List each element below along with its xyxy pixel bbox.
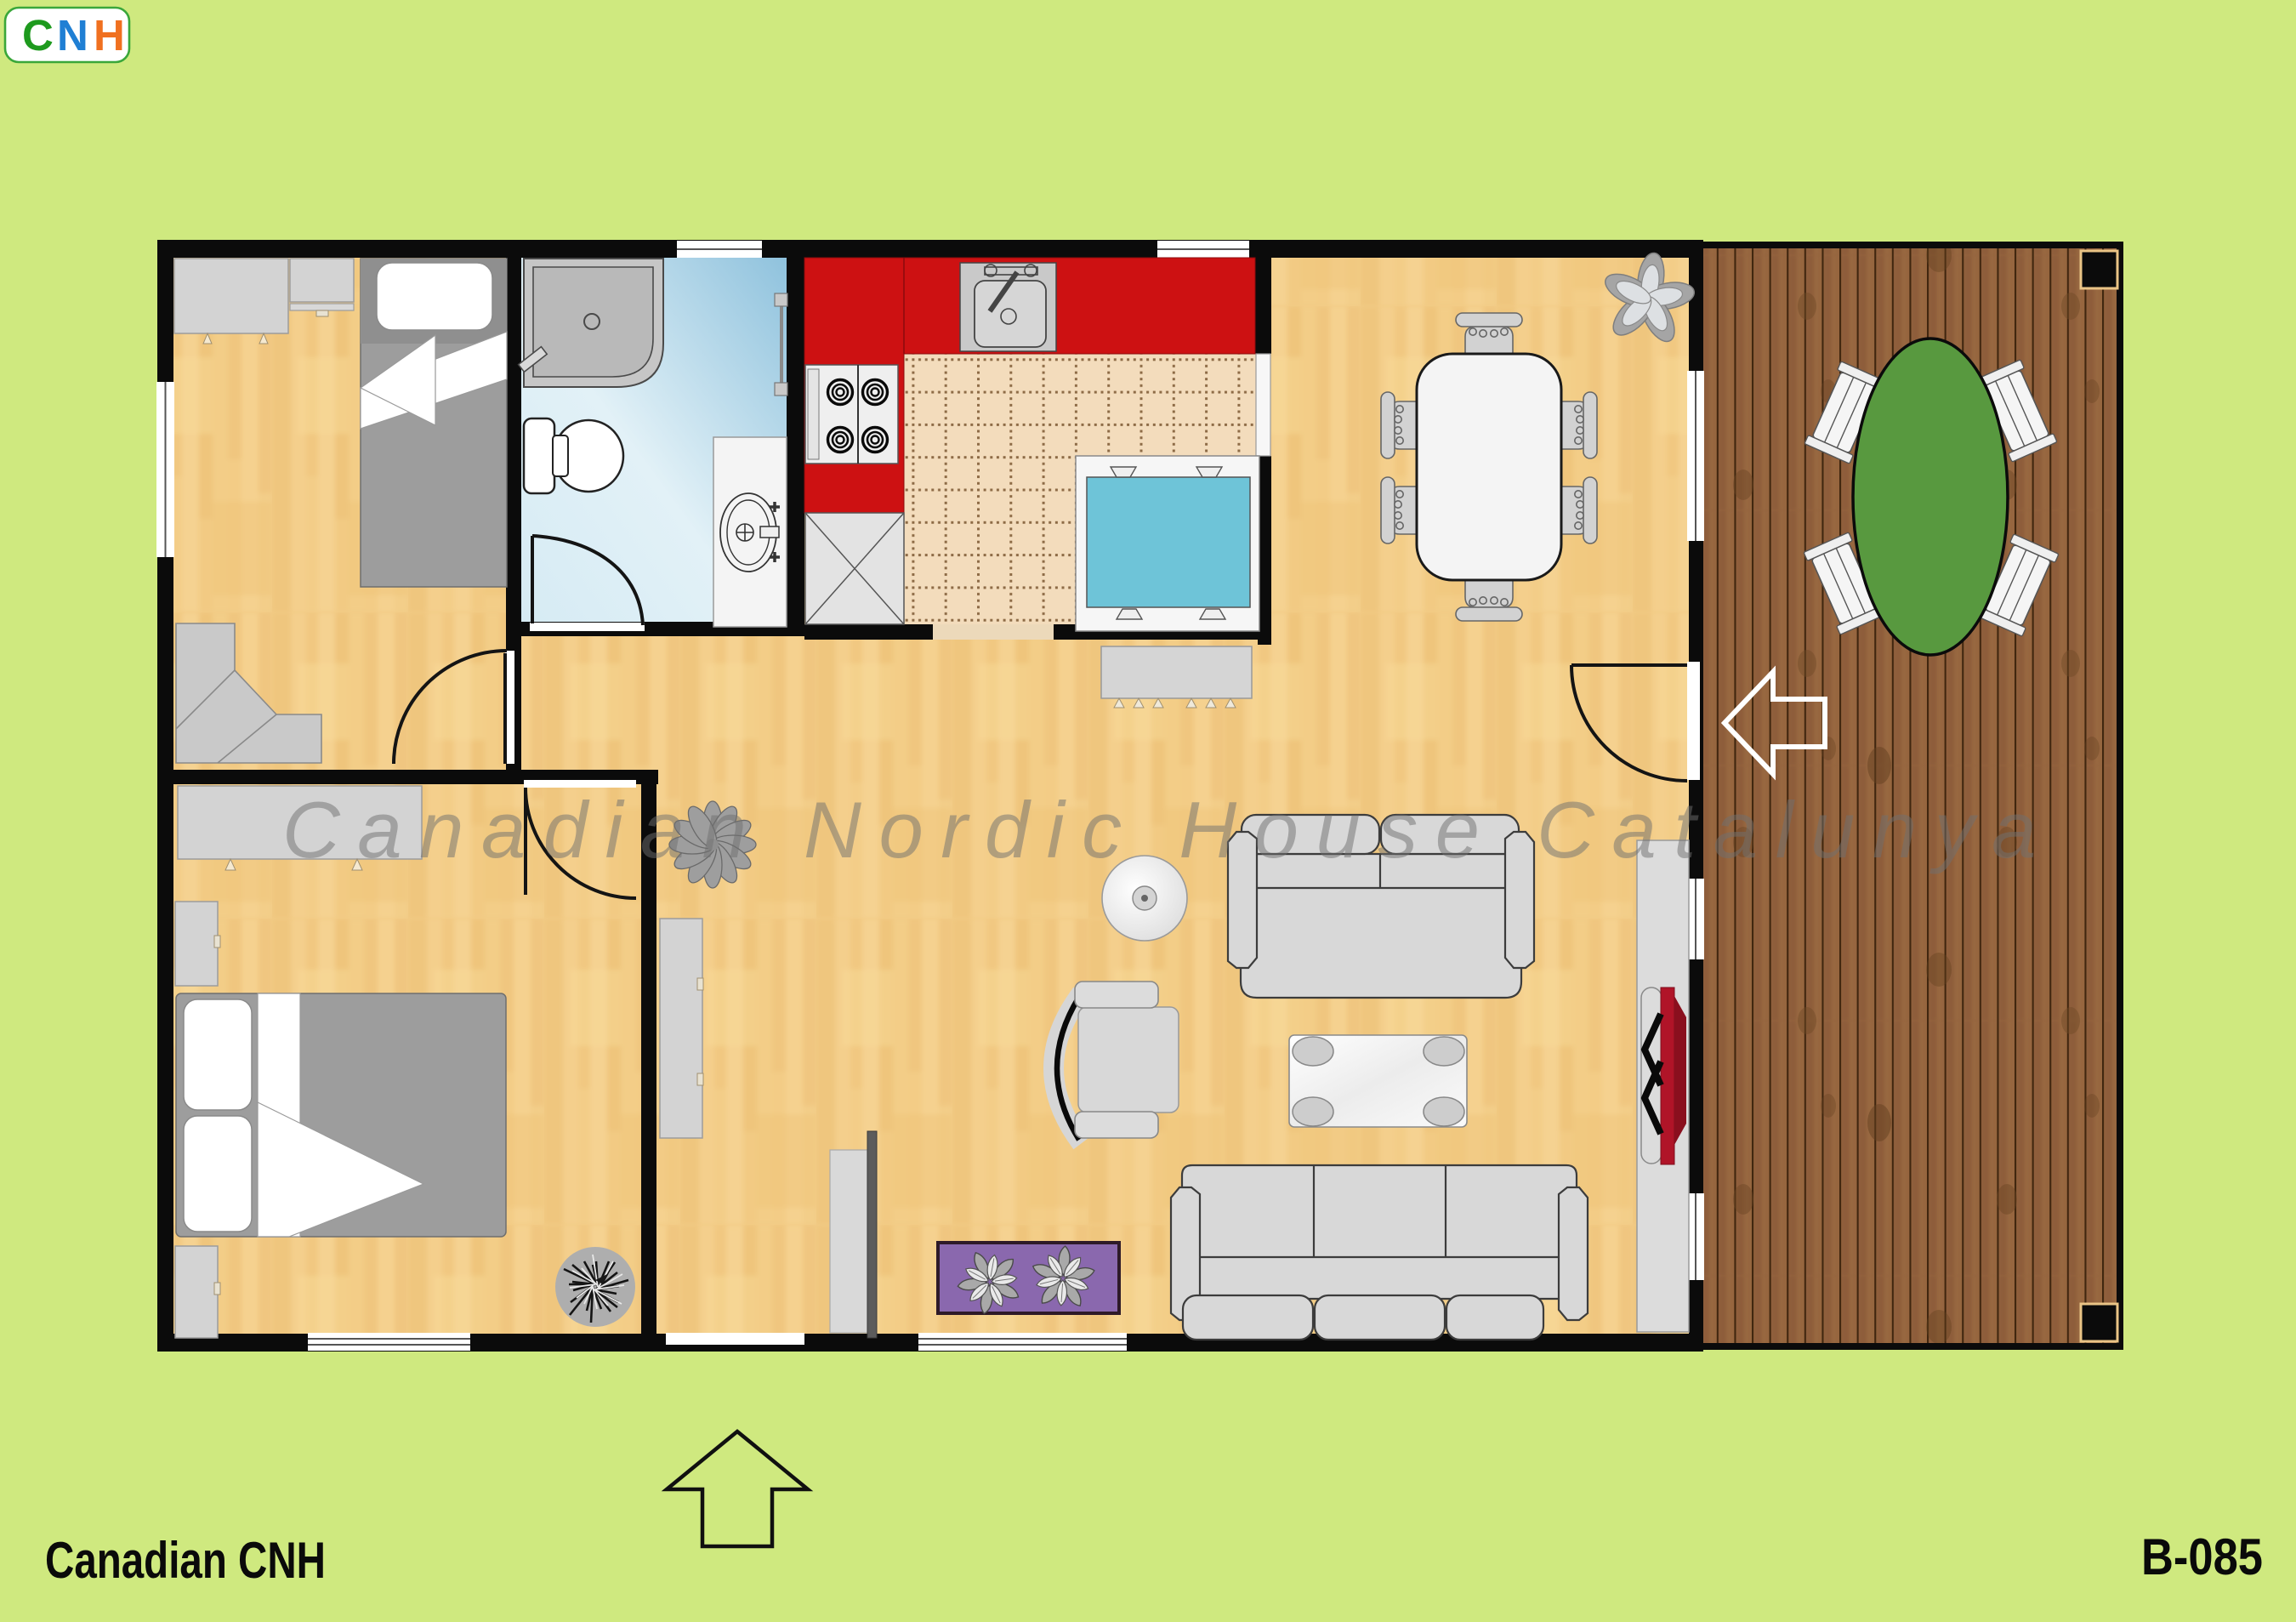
svg-text:N: N [57, 11, 88, 60]
svg-text:H: H [94, 11, 125, 60]
svg-text:C: C [22, 11, 54, 60]
svg-text:Canadian CNH: Canadian CNH [45, 1532, 326, 1589]
svg-text:B-085: B-085 [2141, 1528, 2263, 1585]
svg-text:Canadian Nordic House Cataluny: Canadian Nordic House Catalunya [282, 785, 2054, 874]
